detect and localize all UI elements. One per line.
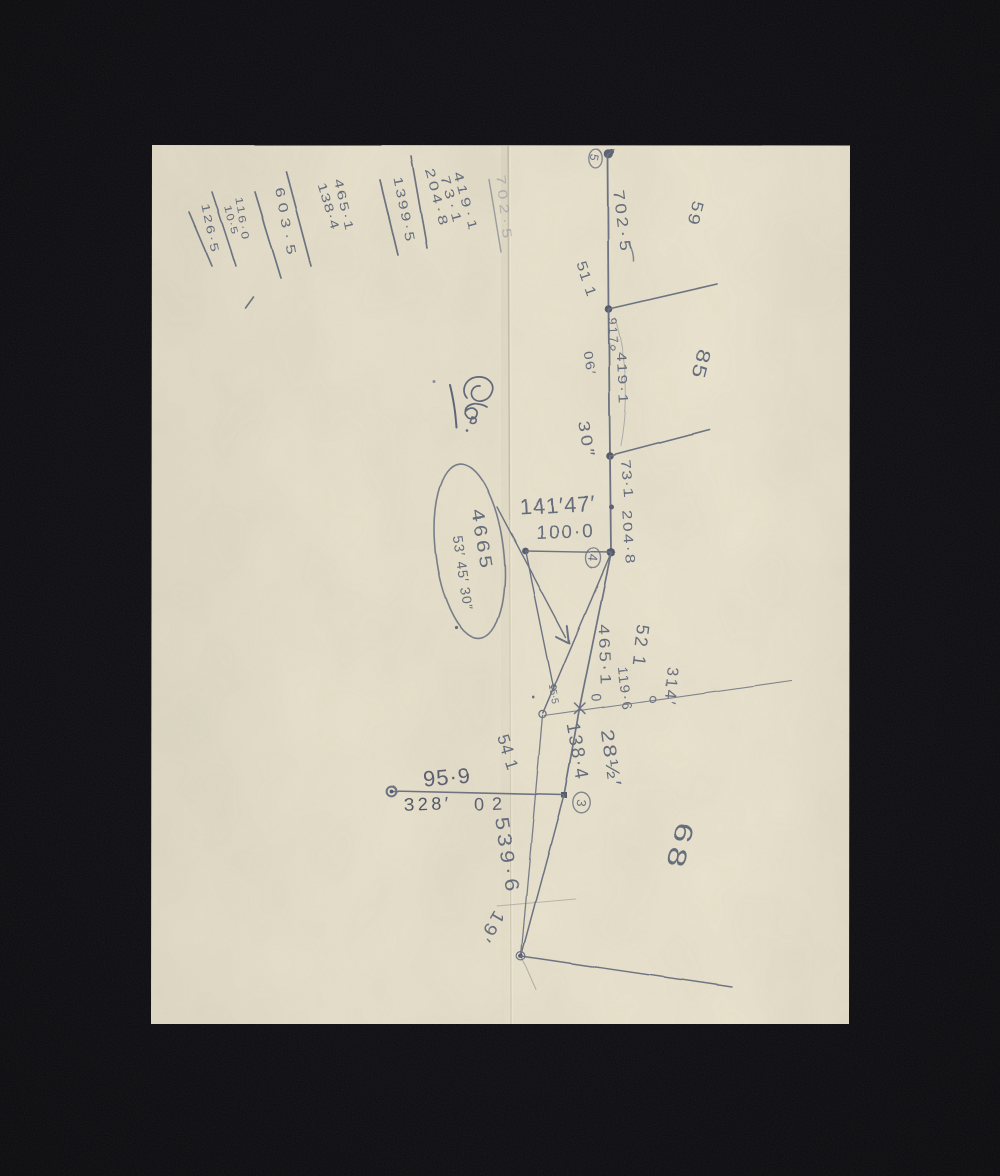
svg-text:02: 02 xyxy=(474,793,511,814)
svg-text:100·0: 100·0 xyxy=(536,521,595,544)
svg-text:4: 4 xyxy=(585,554,601,563)
svg-text:141′47′: 141′47′ xyxy=(519,491,597,520)
svg-text:328′: 328′ xyxy=(404,793,452,815)
svg-text:419·1: 419·1 xyxy=(613,351,631,405)
svg-text:0: 0 xyxy=(588,693,605,702)
svg-text:95·9: 95·9 xyxy=(422,762,472,791)
svg-text:465·1: 465·1 xyxy=(595,624,615,688)
svg-text:3: 3 xyxy=(574,799,590,808)
svg-text:314′: 314′ xyxy=(660,666,680,707)
